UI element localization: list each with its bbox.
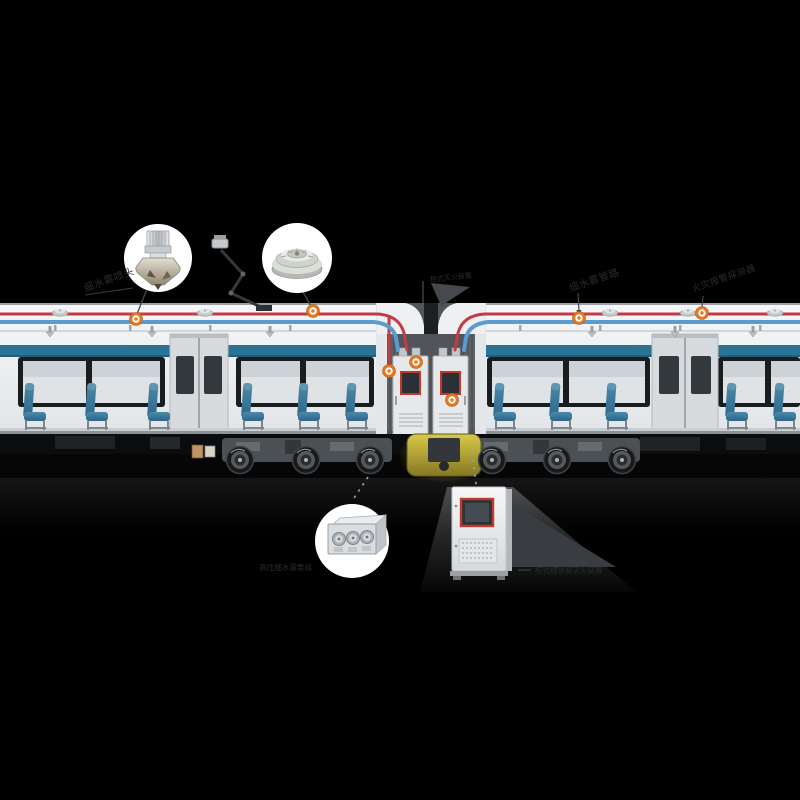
passenger-door [652, 334, 718, 433]
marker-detector [307, 305, 320, 318]
cabinet-screen [401, 372, 420, 394]
callout-bubble-pump [315, 504, 389, 578]
marker-roof-detector [696, 307, 709, 320]
callout-bubble-nozzle [124, 224, 192, 292]
underframe-box [205, 446, 215, 457]
marker-cabinet-pipe [383, 365, 396, 378]
train-fire-suppression-diagram [0, 0, 800, 800]
window [487, 357, 650, 407]
marker-pipeline [573, 312, 586, 325]
pump-module-photo [328, 515, 386, 554]
marker-cabinet-front [446, 394, 459, 407]
control-cabinet [450, 487, 512, 580]
passenger-door [170, 334, 228, 433]
label-control-cabinet: 柜式细水雾灭火装置 [535, 565, 603, 576]
callout-bubble-detector [262, 223, 332, 293]
pantograph [212, 235, 272, 311]
label-pump-unit: 高压细水雾泵组 [250, 562, 312, 573]
underframe-tank-highlighted [407, 434, 481, 476]
cabinet-screen [441, 372, 460, 394]
diagram-canvas: 细水雾喷头 细水雾管路 火灾报警探测器 柜式灭火装置 高压细水雾泵组 柜式细水雾… [0, 0, 800, 800]
underframe-box [192, 445, 203, 458]
onboard-suppression-cabinet [433, 348, 468, 437]
marker-cabinet-top [410, 356, 423, 369]
marker-nozzle [130, 313, 143, 326]
